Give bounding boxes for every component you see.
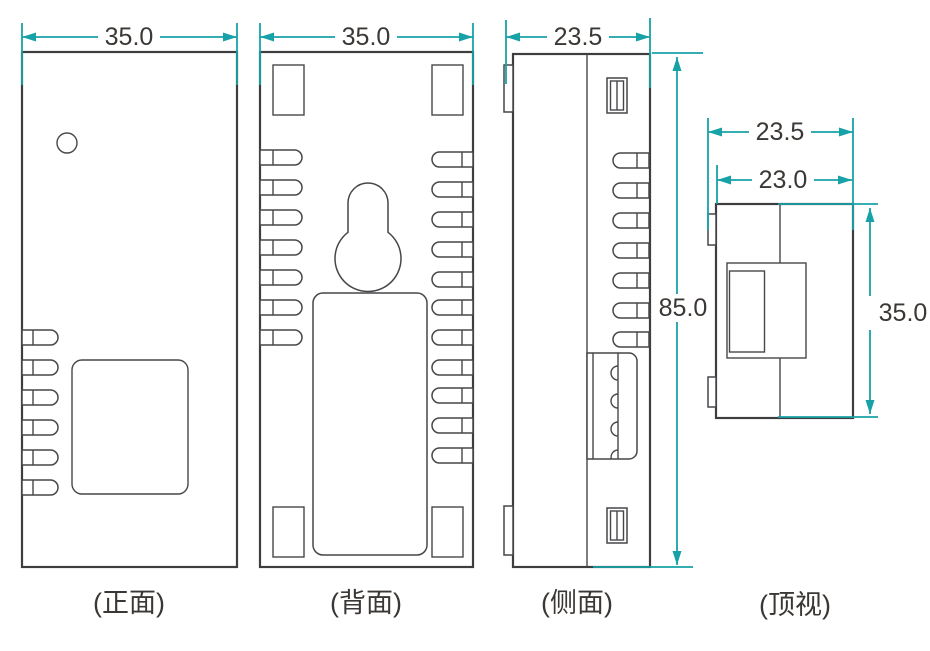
arrow-left-icon [22, 33, 36, 42]
vent-slot [432, 272, 473, 287]
vent-slot [613, 273, 649, 288]
vent-slot [613, 332, 649, 347]
vent-slot [432, 418, 473, 433]
dim-top-depth-body: 23.0 [759, 166, 808, 194]
vent-slot [22, 450, 58, 465]
vent-slot [22, 390, 58, 405]
arrow-up-icon [866, 208, 875, 222]
arrow-right-icon [223, 33, 237, 42]
vent-slot [432, 300, 473, 315]
arrow-left-icon [717, 176, 731, 185]
terminal-block [587, 353, 637, 459]
arrow-down-icon [673, 551, 682, 565]
side-tab [504, 506, 513, 555]
vent-slot [432, 360, 473, 375]
arrow-left-icon [260, 33, 274, 42]
vent-slot [22, 360, 58, 375]
label-back-view: (背面) [330, 588, 402, 618]
vent-slot [613, 153, 649, 168]
vent-slot [260, 240, 302, 255]
side-view: 23.5 85.0 (侧面) [504, 18, 714, 618]
vent-slot [260, 210, 302, 225]
vent-slot [432, 388, 473, 403]
dim-side-height: 85.0 [659, 294, 708, 322]
technical-drawing-page: 35.0 (正面) [0, 0, 930, 651]
arrow-left-icon [506, 33, 520, 42]
vent-slot [432, 448, 473, 463]
vent-slot [613, 213, 649, 228]
label-top-view: (顶视) [759, 590, 831, 620]
vent-slot [432, 212, 473, 227]
back-cover-panel [313, 293, 427, 555]
vent-slot [432, 152, 473, 167]
vent-slot [613, 183, 649, 198]
top-view: 23.5 23.0 35.0 (顶视) [708, 118, 927, 620]
vent-slot [613, 243, 649, 258]
snap-clip [607, 78, 627, 113]
top-body-outline [716, 204, 853, 418]
vent-slot [432, 242, 473, 257]
side-tab [708, 214, 716, 245]
arrow-up-icon [673, 57, 682, 71]
arrow-down-icon [866, 400, 875, 414]
arrow-left-icon [708, 128, 722, 137]
vent-slot [22, 330, 58, 345]
vent-slot [260, 180, 302, 195]
arrow-right-icon [839, 128, 853, 137]
dim-front-width: 35.0 [105, 23, 154, 51]
arrow-right-icon [838, 176, 852, 185]
front-view: 35.0 (正面) [22, 23, 237, 618]
vent-slot [22, 420, 58, 435]
technical-drawing-canvas: 35.0 (正面) [0, 0, 930, 651]
dim-back-width: 35.0 [342, 23, 391, 51]
snap-clip [607, 508, 627, 543]
vent-slot [260, 300, 302, 315]
vent-slot [260, 270, 302, 285]
arrow-right-icon [459, 33, 473, 42]
dim-top-width: 35.0 [879, 299, 928, 327]
vent-slot [260, 150, 302, 165]
vent-slot [432, 330, 473, 345]
side-tab [708, 377, 716, 407]
dim-side-depth: 23.5 [554, 23, 603, 51]
vent-slot [22, 480, 58, 495]
label-side-view: (侧面) [541, 588, 613, 618]
vent-slot [432, 182, 473, 197]
vent-slot [260, 330, 302, 345]
dim-top-depth-overall: 23.5 [756, 118, 805, 146]
arrow-right-icon [636, 33, 650, 42]
dimension-top-depth-body: 23.0 [717, 165, 852, 204]
back-view: 35.0 (背面) [260, 23, 473, 618]
label-front-view: (正面) [93, 588, 165, 618]
vent-slot [613, 303, 649, 318]
